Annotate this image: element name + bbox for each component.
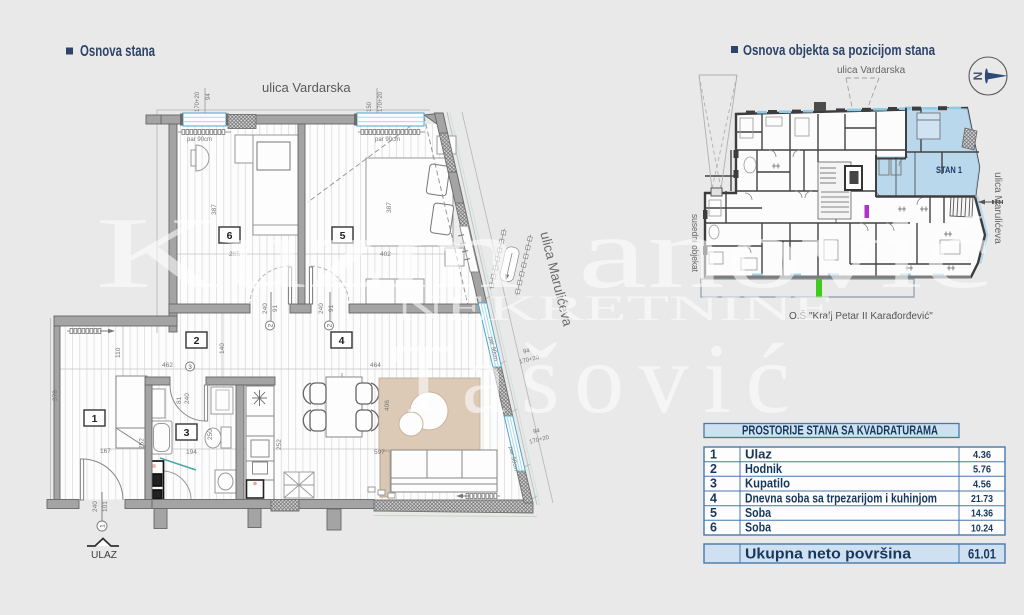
svg-text:Osnova stana: Osnova stana (80, 43, 155, 60)
svg-text:167: 167 (100, 448, 111, 455)
svg-text:ULAZ: ULAZ (91, 550, 117, 561)
svg-text:NEKRETNINE: NEKRETNINE (395, 288, 835, 328)
svg-text:2: 2 (268, 323, 275, 327)
svg-text:4.36: 4.36 (973, 449, 991, 461)
svg-text:150: 150 (367, 101, 373, 112)
svg-text:81: 81 (176, 396, 183, 404)
svg-text:par 90cm: par 90cm (375, 137, 400, 143)
svg-text:Kupatilo: Kupatilo (745, 477, 790, 491)
svg-text:Dnevna soba sa trpezarijom i k: Dnevna soba sa trpezarijom i kuhinjom (745, 491, 937, 505)
svg-text:ulica Vardarska: ulica Vardarska (837, 65, 906, 76)
svg-text:5.76: 5.76 (973, 464, 991, 476)
svg-text:464: 464 (370, 362, 381, 369)
svg-text:250: 250 (207, 429, 214, 440)
svg-text:3: 3 (710, 477, 717, 491)
svg-text:Ukupna neto površina: Ukupna neto površina (745, 546, 912, 563)
svg-text:61.01: 61.01 (968, 547, 996, 562)
svg-text:101: 101 (102, 501, 109, 512)
svg-text:240: 240 (92, 501, 99, 512)
svg-text:252: 252 (276, 439, 283, 450)
svg-text:1: 1 (92, 413, 98, 425)
svg-text:Soba: Soba (745, 506, 772, 520)
svg-text:21.73: 21.73 (971, 493, 993, 505)
svg-text:170+20: 170+20 (195, 91, 201, 112)
svg-text:Soba: Soba (745, 521, 772, 535)
svg-text:3: 3 (184, 427, 190, 439)
svg-text:14.36: 14.36 (971, 508, 993, 520)
svg-text:252: 252 (139, 438, 146, 449)
svg-text:4.56: 4.56 (973, 478, 991, 490)
svg-text:140: 140 (219, 343, 226, 354)
svg-text:2: 2 (710, 462, 717, 476)
svg-text:4: 4 (710, 491, 717, 505)
svg-text:597: 597 (374, 449, 385, 456)
svg-text:6: 6 (710, 521, 717, 535)
svg-text:240: 240 (184, 393, 191, 404)
svg-text:ulica Vardarska: ulica Vardarska (262, 80, 351, 95)
svg-text:2: 2 (327, 323, 334, 327)
svg-text:STAN 1: STAN 1 (936, 165, 963, 176)
svg-text:2: 2 (194, 335, 200, 347)
svg-text:194: 194 (186, 449, 197, 456)
svg-text:1: 1 (100, 524, 107, 528)
svg-text:378: 378 (52, 390, 59, 401)
svg-text:110: 110 (115, 347, 122, 358)
svg-text:170+20: 170+20 (378, 91, 384, 112)
svg-text:Ulaz: Ulaz (745, 448, 772, 462)
svg-text:par 90cm: par 90cm (187, 137, 212, 143)
svg-text:4: 4 (339, 335, 345, 347)
svg-text:Hodnik: Hodnik (745, 462, 782, 476)
svg-text:10.24: 10.24 (971, 522, 993, 534)
svg-text:ulica Marulićeva: ulica Marulićeva (992, 172, 1003, 244)
svg-text:94: 94 (206, 93, 212, 100)
svg-text:PROSTORIJE STANA SA KVADRATURA: PROSTORIJE STANA SA KVADRATURAMA (742, 424, 938, 438)
svg-text:462: 462 (162, 362, 173, 369)
svg-text:1: 1 (710, 448, 717, 462)
svg-text:3: 3 (188, 364, 192, 371)
svg-text:406: 406 (384, 400, 391, 411)
svg-text:5: 5 (710, 506, 717, 520)
svg-text:Osnova objekta sa pozicijom st: Osnova objekta sa pozicijom stana (743, 43, 936, 59)
svg-text:N: N (971, 72, 985, 81)
